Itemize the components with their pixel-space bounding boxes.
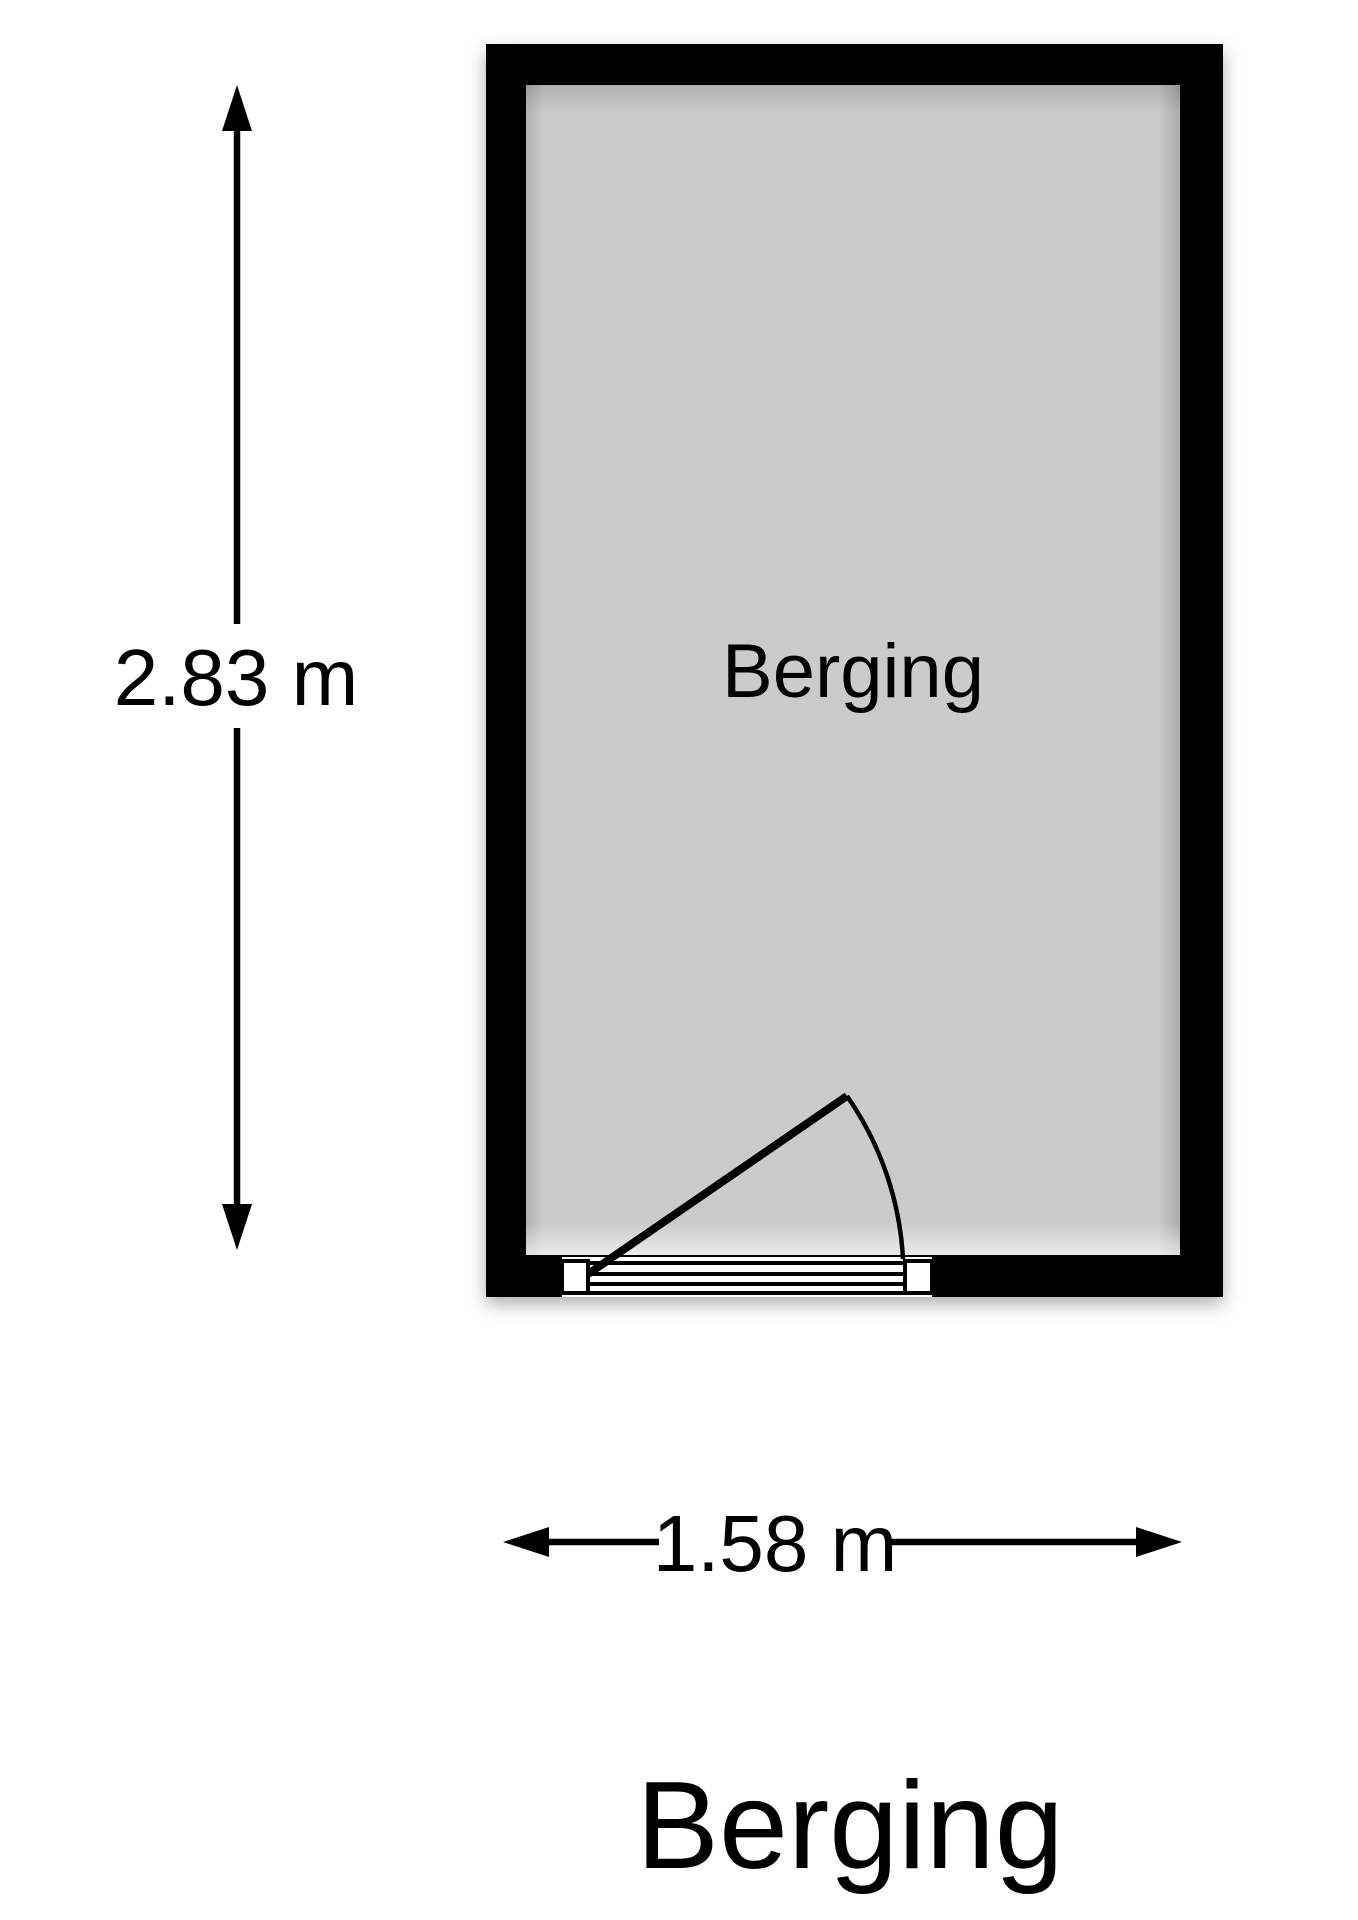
dimension-vertical: 2.83 m <box>114 85 359 1250</box>
dimension-horizontal-arrow-right-icon <box>1136 1527 1182 1557</box>
dimension-vertical-arrow-down-icon <box>222 1204 252 1250</box>
floorplan: Berging 2.83 m 1.58 m Berging <box>0 0 1358 1920</box>
floor-shade-right <box>1158 85 1180 1255</box>
floorplan-canvas: Berging 2.83 m 1.58 m Berging <box>0 0 1358 1920</box>
door-post-right <box>905 1261 932 1293</box>
dimension-vertical-label: 2.83 m <box>114 633 359 722</box>
floor-shade-left <box>526 85 544 1255</box>
dimension-horizontal: 1.58 m <box>503 1499 1182 1588</box>
room-berging: Berging <box>486 44 1223 1297</box>
dimension-vertical-arrow-up-icon <box>222 85 252 131</box>
plan-title: Berging <box>636 1757 1063 1895</box>
dimension-horizontal-label: 1.58 m <box>653 1499 898 1588</box>
door-post-left <box>562 1261 588 1293</box>
dimension-horizontal-arrow-left-icon <box>503 1527 549 1557</box>
room-label: Berging <box>722 629 984 714</box>
floor-shade-top <box>526 85 1180 113</box>
